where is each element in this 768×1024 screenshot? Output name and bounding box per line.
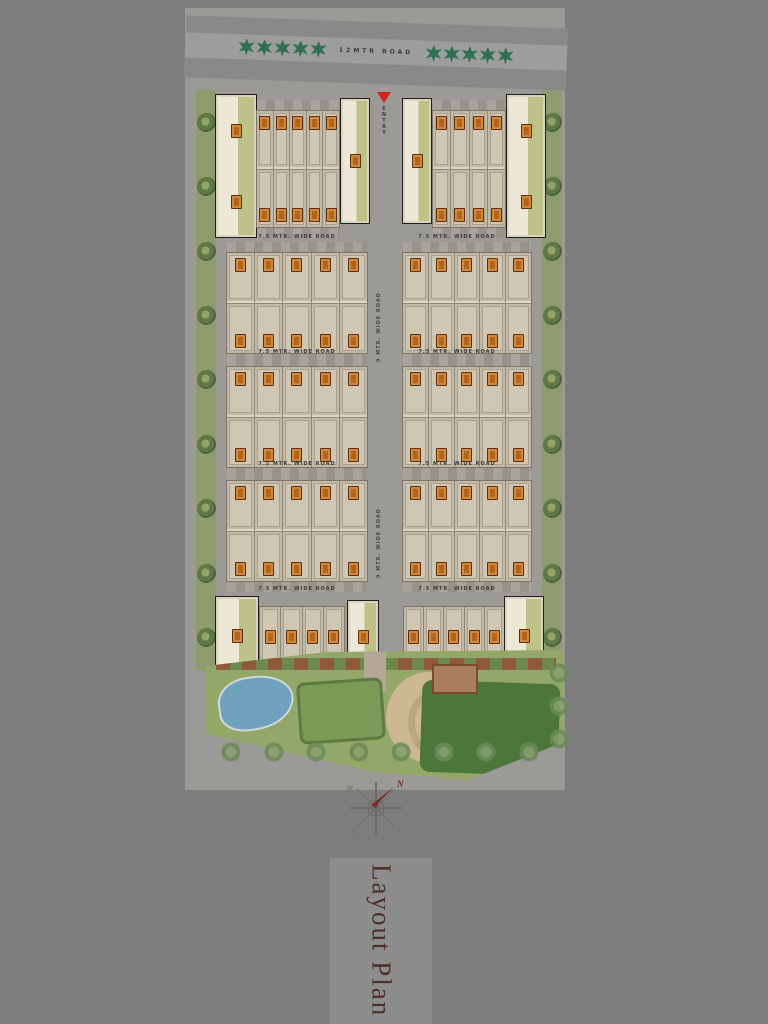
unit-number-badge — [263, 562, 274, 576]
housing-unit — [290, 111, 306, 169]
housing-unit — [455, 367, 480, 417]
housing-unit — [470, 170, 487, 228]
housing-unit — [480, 418, 505, 468]
unit-number-badge — [292, 116, 303, 130]
unit-number-badge — [263, 372, 274, 386]
pergola-seating — [432, 664, 478, 694]
housing-unit — [429, 253, 454, 303]
cross-road-label: 7.5 MTR. WIDE ROAD — [392, 234, 522, 240]
tree-icon — [197, 564, 216, 583]
housing-unit — [283, 418, 310, 468]
cross-road-label: 7.5 MTR. WIDE ROAD — [232, 234, 362, 240]
unit-number-badge — [489, 630, 500, 644]
housing-unit — [433, 111, 450, 169]
housing-unit — [323, 111, 339, 169]
housing-unit — [255, 304, 282, 354]
unit-number-badge — [291, 372, 302, 386]
tree-icon — [390, 741, 412, 763]
unit-number-badge — [513, 448, 524, 462]
housing-unit — [227, 253, 254, 303]
tree-icon — [543, 628, 562, 647]
housing-unit — [255, 367, 282, 417]
unit-number-badge — [328, 630, 339, 644]
unit-number-badge — [291, 334, 302, 348]
unit-number-badge — [436, 448, 447, 462]
unit-number-badge — [320, 372, 331, 386]
housing-unit — [227, 481, 254, 531]
housing-unit — [312, 367, 339, 417]
housing-unit — [323, 170, 339, 228]
tree-icon — [220, 741, 242, 763]
title-band: Layout Plan — [330, 858, 432, 1024]
unit-number-badge — [519, 629, 530, 643]
housing-strip — [402, 366, 532, 468]
unit-number-badge — [410, 334, 421, 348]
unit-number-badge — [326, 208, 337, 222]
tree-icon — [197, 177, 216, 196]
unit-number-badge — [309, 116, 320, 130]
unit-number-badge — [292, 208, 303, 222]
housing-unit — [506, 304, 531, 354]
unit-number-badge — [461, 562, 472, 576]
tree-icon — [543, 370, 562, 389]
compass-south-label: S — [352, 829, 356, 836]
tree-icon — [479, 47, 497, 65]
unit-number-badge — [487, 258, 498, 272]
tree-icon — [256, 39, 274, 57]
housing-unit — [227, 418, 254, 468]
unit-number-badge — [436, 562, 447, 576]
unit-number-badge — [410, 448, 421, 462]
unit-number-badge — [436, 258, 447, 272]
tree-icon — [348, 741, 370, 763]
housing-unit — [455, 481, 480, 531]
housing-unit — [506, 481, 531, 531]
housing-unit — [283, 481, 310, 531]
unit-number-badge — [348, 372, 359, 386]
main-road-stripe: 12MTR ROAD — [185, 32, 568, 70]
entry-arrow-icon — [377, 92, 391, 103]
unit-number-badge — [348, 486, 359, 500]
unit-number-badge — [487, 562, 498, 576]
site-layout-plan-page: { "page": { "background": "#7d7d7d" }, "… — [0, 0, 768, 1024]
tree-icon — [263, 741, 285, 763]
unit-number-badge — [235, 372, 246, 386]
tree-icon — [443, 45, 461, 63]
housing-unit — [429, 367, 454, 417]
unit-number-badge — [436, 116, 447, 130]
housing-strip — [256, 110, 340, 228]
unit-number-badge — [307, 630, 318, 644]
unit-number-badge — [461, 372, 472, 386]
housing-unit — [429, 418, 454, 468]
unit-number-badge — [265, 630, 276, 644]
housing-unit — [227, 532, 254, 582]
backyard-garden-strip — [216, 658, 556, 670]
unit-number-badge — [276, 116, 287, 130]
cross-road-label: 7.5 MTR. WIDE ROAD — [232, 349, 362, 355]
housing-unit — [312, 481, 339, 531]
unit-number-badge — [410, 562, 421, 576]
housing-unit — [257, 111, 273, 169]
road-tree-cluster-left — [238, 38, 328, 58]
unit-number-badge — [487, 334, 498, 348]
swimming-pool — [215, 671, 298, 735]
housing-unit — [340, 418, 367, 468]
unit-number-badge — [491, 208, 502, 222]
unit-number-badge — [461, 486, 472, 500]
housing-unit — [307, 111, 323, 169]
corner-plot — [506, 94, 546, 238]
housing-unit — [307, 170, 323, 228]
unit-number-badge — [487, 372, 498, 386]
cross-road-label: 7.5 MTR. WIDE ROAD — [392, 461, 522, 467]
tree-icon — [548, 695, 570, 717]
cross-road-label: 7.5 MTR. WIDE ROAD — [232, 586, 362, 592]
unit-number-badge — [320, 486, 331, 500]
main-road-label: 12MTR ROAD — [339, 47, 414, 57]
unit-number-badge — [235, 448, 246, 462]
unit-number-badge — [348, 334, 359, 348]
corner-plot — [402, 98, 432, 224]
unit-number-badge — [513, 258, 524, 272]
housing-unit — [480, 481, 505, 531]
unit-number-badge — [408, 630, 419, 644]
compass-west-label: W — [347, 785, 353, 792]
tree-icon — [197, 306, 216, 325]
compass-north-needle — [371, 787, 394, 808]
unit-number-badge — [348, 258, 359, 272]
housing-unit — [455, 532, 480, 582]
unit-number-badge — [235, 334, 246, 348]
unit-number-badge — [350, 154, 361, 168]
housing-unit — [403, 532, 428, 582]
tree-icon — [433, 741, 455, 763]
unit-number-badge — [513, 372, 524, 386]
unit-number-badge — [454, 116, 465, 130]
cross-road-label: 7.5 MTR. WIDE ROAD — [392, 349, 522, 355]
unit-number-badge — [487, 486, 498, 500]
housing-unit — [506, 253, 531, 303]
unit-number-badge — [410, 258, 421, 272]
unit-number-badge — [291, 486, 302, 500]
housing-unit — [488, 111, 505, 169]
housing-unit — [455, 304, 480, 354]
amenity-tree-row — [220, 740, 540, 764]
housing-unit — [255, 481, 282, 531]
tree-icon — [305, 741, 327, 763]
unit-number-badge — [469, 630, 480, 644]
housing-unit — [470, 111, 487, 169]
tree-icon — [238, 38, 256, 56]
cross-road-label: 7.5 MTR. WIDE ROAD — [232, 461, 362, 467]
housing-strip — [226, 252, 368, 354]
unit-number-badge — [412, 154, 423, 168]
entry-label: ENTRY — [381, 106, 387, 136]
housing-unit — [283, 532, 310, 582]
unit-number-badge — [232, 629, 243, 643]
housing-unit — [312, 304, 339, 354]
unit-number-badge — [448, 630, 459, 644]
tree-icon — [497, 47, 515, 65]
corner-plot — [340, 98, 370, 224]
housing-unit — [257, 170, 273, 228]
housing-unit — [255, 532, 282, 582]
housing-unit — [506, 367, 531, 417]
housing-unit — [290, 170, 306, 228]
housing-strip — [432, 110, 506, 228]
tree-icon — [543, 306, 562, 325]
housing-unit — [312, 253, 339, 303]
tree-icon — [197, 370, 216, 389]
unit-number-badge — [320, 562, 331, 576]
unit-number-badge — [428, 630, 439, 644]
tree-icon — [292, 40, 310, 58]
central-road-label: 9 MTR. WIDE ROAD — [376, 262, 382, 362]
unit-number-badge — [454, 208, 465, 222]
compass-rose: N W S E — [344, 776, 408, 840]
tree-icon — [310, 41, 328, 59]
tree-icon — [197, 435, 216, 454]
housing-unit — [283, 367, 310, 417]
tree-icon — [425, 45, 443, 63]
housing-unit — [480, 253, 505, 303]
housing-unit — [455, 418, 480, 468]
tree-icon — [197, 242, 216, 261]
tree-icon — [543, 499, 562, 518]
unit-number-badge — [461, 448, 472, 462]
housing-unit — [403, 481, 428, 531]
housing-strip — [226, 366, 368, 468]
housing-unit — [340, 253, 367, 303]
housing-unit — [403, 304, 428, 354]
unit-number-badge — [410, 372, 421, 386]
housing-unit — [403, 367, 428, 417]
tree-icon — [197, 499, 216, 518]
housing-unit — [403, 418, 428, 468]
cross-road-label: 7.5 MTR. WIDE ROAD — [392, 586, 522, 592]
housing-unit — [480, 367, 505, 417]
housing-unit — [340, 481, 367, 531]
compass-north-label: N — [396, 779, 404, 789]
page-title: Layout Plan — [366, 864, 397, 1017]
unit-number-badge — [320, 258, 331, 272]
tree-icon — [543, 242, 562, 261]
housing-unit — [283, 304, 310, 354]
unit-number-badge — [235, 562, 246, 576]
housing-unit — [340, 532, 367, 582]
unit-number-badge — [286, 630, 297, 644]
unit-number-badge — [348, 562, 359, 576]
main-road-band: 12MTR ROAD — [184, 15, 568, 90]
unit-number-badge — [235, 258, 246, 272]
housing-unit — [274, 170, 290, 228]
compass-east-label: E — [398, 827, 402, 834]
housing-unit — [480, 532, 505, 582]
housing-strip — [402, 252, 532, 354]
unit-number-badge — [263, 334, 274, 348]
housing-unit — [227, 304, 254, 354]
tree-icon — [475, 741, 497, 763]
unit-number-badge — [473, 116, 484, 130]
unit-number-badge — [513, 486, 524, 500]
unit-number-badge — [259, 116, 270, 130]
corner-plot — [215, 94, 257, 238]
tree-icon — [461, 46, 479, 64]
tree-icon — [543, 564, 562, 583]
housing-unit — [451, 170, 468, 228]
unit-number-badge — [291, 448, 302, 462]
housing-unit — [255, 418, 282, 468]
tree-icon — [197, 628, 216, 647]
unit-number-badge — [309, 208, 320, 222]
housing-unit — [227, 367, 254, 417]
unit-number-badge — [487, 448, 498, 462]
unit-number-badge — [491, 116, 502, 130]
unit-number-badge — [263, 486, 274, 500]
unit-number-badge — [436, 372, 447, 386]
unit-number-badge — [358, 630, 369, 644]
road-tree-cluster-right — [425, 45, 515, 65]
housing-unit — [429, 481, 454, 531]
housing-unit — [480, 304, 505, 354]
unit-number-badge — [263, 448, 274, 462]
housing-unit — [451, 111, 468, 169]
unit-number-badge — [231, 124, 242, 138]
tree-icon — [197, 113, 216, 132]
housing-unit — [488, 170, 505, 228]
housing-unit — [506, 418, 531, 468]
unit-number-badge — [291, 562, 302, 576]
housing-strip — [402, 480, 532, 582]
tree-icon — [548, 662, 570, 684]
tree-icon — [548, 728, 570, 750]
unit-number-badge — [436, 334, 447, 348]
amenity-tree-column-right — [548, 656, 570, 756]
unit-number-badge — [235, 486, 246, 500]
unit-number-badge — [436, 208, 447, 222]
housing-unit — [455, 253, 480, 303]
unit-number-badge — [521, 124, 532, 138]
housing-unit — [429, 304, 454, 354]
unit-number-badge — [513, 562, 524, 576]
unit-number-badge — [320, 448, 331, 462]
unit-number-badge — [263, 258, 274, 272]
unit-number-badge — [276, 208, 287, 222]
unit-number-badge — [513, 334, 524, 348]
unit-number-badge — [436, 486, 447, 500]
unit-number-badge — [320, 334, 331, 348]
housing-unit — [340, 304, 367, 354]
tree-icon — [543, 435, 562, 454]
tree-icon — [274, 39, 292, 57]
unit-number-badge — [259, 208, 270, 222]
left-green-verge — [196, 90, 216, 670]
housing-unit — [433, 170, 450, 228]
housing-unit — [429, 532, 454, 582]
lawn-area — [296, 677, 386, 745]
housing-unit — [274, 111, 290, 169]
unit-number-badge — [291, 258, 302, 272]
housing-unit — [403, 253, 428, 303]
housing-unit — [340, 367, 367, 417]
housing-unit — [312, 532, 339, 582]
unit-number-badge — [231, 195, 242, 209]
unit-number-badge — [521, 195, 532, 209]
housing-unit — [255, 253, 282, 303]
unit-number-badge — [473, 208, 484, 222]
unit-number-badge — [326, 116, 337, 130]
housing-unit — [283, 253, 310, 303]
housing-strip — [226, 480, 368, 582]
housing-unit — [312, 418, 339, 468]
central-road-label: 9 MTR. WIDE ROAD — [376, 478, 382, 578]
housing-unit — [506, 532, 531, 582]
unit-number-badge — [348, 448, 359, 462]
unit-number-badge — [461, 334, 472, 348]
tree-icon — [518, 741, 540, 763]
unit-number-badge — [410, 486, 421, 500]
unit-number-badge — [461, 258, 472, 272]
